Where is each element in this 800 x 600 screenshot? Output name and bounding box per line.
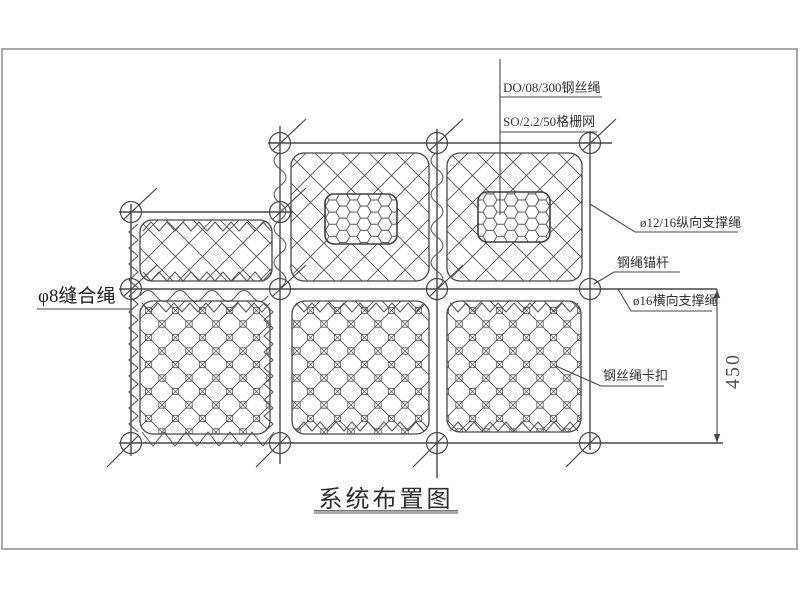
mesh-patch-top-right <box>478 192 550 242</box>
title-underline <box>314 510 458 514</box>
label-transverse-rope: ø16横向支撑绳 <box>633 294 718 309</box>
mesh-patch-top-middle <box>325 194 397 244</box>
label-wire-rope-net: DO/08/300钢丝绳 <box>503 81 601 96</box>
dimension-value-450: 450 <box>722 353 745 389</box>
panel-bottom-middle <box>292 301 429 434</box>
system-layout-drawing: DO/08/300钢丝绳 SO/2.2/50格栅网 ø12/16纵向支撑绳 钢绳… <box>0 0 800 600</box>
label-grid-mesh: SO/2.2/50格栅网 <box>503 115 595 130</box>
label-wire-rope-clip: 钢丝绳卡扣 <box>603 369 668 384</box>
leader-anchor-rod <box>594 272 680 284</box>
dimension-450 <box>714 289 720 443</box>
panel-bottom-right <box>447 301 581 432</box>
panel-bottom-left <box>140 301 270 434</box>
label-longitudinal-rope: ø12/16纵向支撑绳 <box>640 216 741 231</box>
label-anchor-rod: 钢绳锚杆 <box>617 256 669 271</box>
drawing-title: 系统布置图 <box>313 479 459 514</box>
label-seam-rope: φ8缝合绳 <box>38 286 115 308</box>
